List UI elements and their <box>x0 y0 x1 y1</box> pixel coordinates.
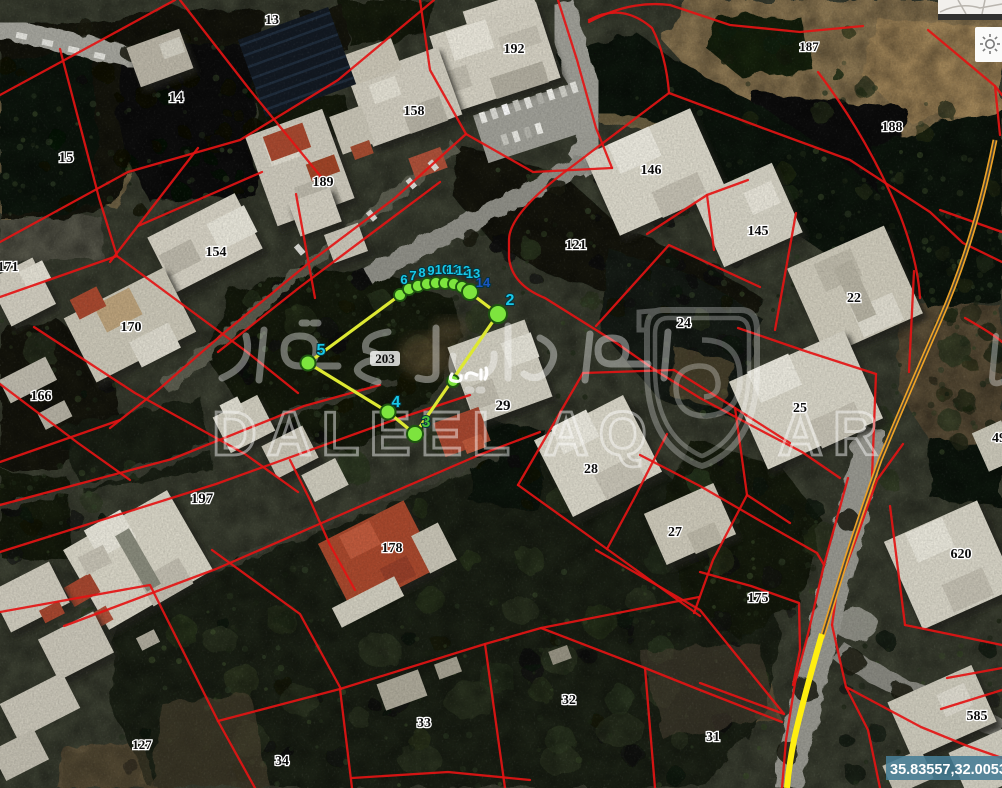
svg-text:127: 127 <box>132 737 152 752</box>
svg-text:27: 27 <box>668 525 682 540</box>
svg-text:3: 3 <box>422 414 431 431</box>
svg-text:35.83557,32.0053: 35.83557,32.0053 <box>890 762 1002 778</box>
svg-text:31: 31 <box>706 730 720 745</box>
svg-text:13: 13 <box>265 13 279 28</box>
svg-text:DALEEL AQ: DALEEL AQ <box>212 400 657 469</box>
svg-text:22: 22 <box>847 291 861 306</box>
svg-text:15: 15 <box>59 150 74 166</box>
svg-text:5: 5 <box>317 342 326 359</box>
svg-text:189: 189 <box>313 175 334 190</box>
svg-text:175: 175 <box>748 591 769 606</box>
svg-text:192: 192 <box>504 42 525 57</box>
svg-text:6: 6 <box>400 272 407 287</box>
svg-text:203: 203 <box>375 351 395 366</box>
svg-text:187: 187 <box>799 39 819 54</box>
svg-text:29: 29 <box>496 398 511 414</box>
svg-text:166: 166 <box>31 389 52 404</box>
svg-text:188: 188 <box>882 120 903 135</box>
svg-text:25: 25 <box>793 401 807 416</box>
svg-text:145: 145 <box>748 224 769 239</box>
svg-text:7: 7 <box>409 268 416 283</box>
svg-text:32: 32 <box>562 693 576 708</box>
svg-text:178: 178 <box>382 541 403 556</box>
svg-text:620: 620 <box>951 547 972 562</box>
svg-text:33: 33 <box>417 716 431 731</box>
svg-text:14: 14 <box>169 90 185 106</box>
svg-text:8: 8 <box>418 265 425 280</box>
svg-text:171: 171 <box>0 260 19 275</box>
svg-text:9: 9 <box>427 263 434 278</box>
svg-text:158: 158 <box>404 104 425 119</box>
svg-text:146: 146 <box>641 163 662 178</box>
svg-text:197: 197 <box>191 491 214 507</box>
svg-text:170: 170 <box>121 320 142 335</box>
svg-text:585: 585 <box>967 709 988 724</box>
svg-text:154: 154 <box>206 245 227 260</box>
svg-text:34: 34 <box>275 754 289 769</box>
svg-text:2: 2 <box>506 292 515 309</box>
svg-text:49: 49 <box>992 431 1002 446</box>
svg-text:24: 24 <box>677 316 691 331</box>
svg-text:14: 14 <box>476 275 491 290</box>
svg-text:121: 121 <box>566 238 587 253</box>
svg-text:28: 28 <box>584 462 598 477</box>
svg-text:4: 4 <box>392 394 401 411</box>
